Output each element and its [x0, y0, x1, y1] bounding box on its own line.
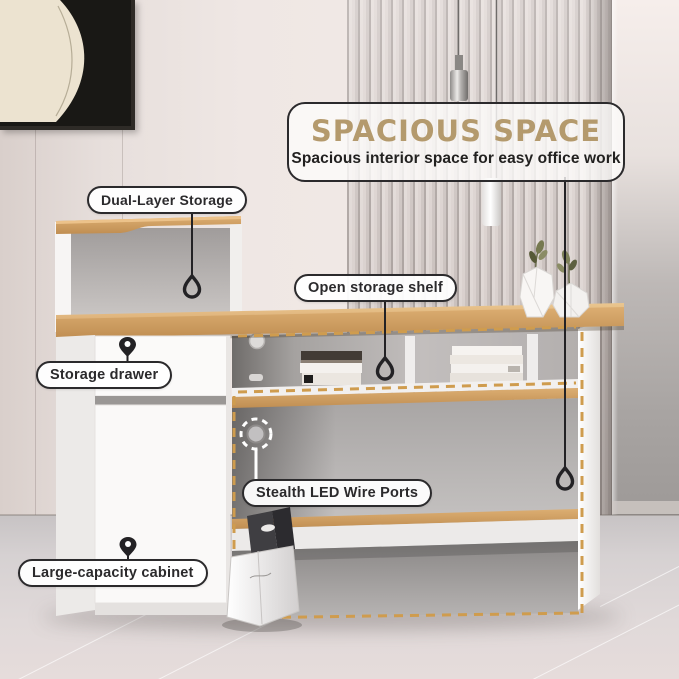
led-wire-port	[248, 426, 265, 443]
open-shelf-row	[232, 326, 578, 408]
pedestal-kick	[95, 603, 230, 615]
pedestal-edge	[226, 336, 230, 603]
callout-label: Open storage shelf	[308, 280, 443, 296]
small-pendant-lamp	[450, 70, 468, 101]
long-pendant-lamp	[482, 178, 501, 226]
callout-storage-drawer: Storage drawer	[36, 361, 172, 389]
hutch-back-panel	[68, 228, 234, 320]
callout-label: Stealth LED Wire Ports	[256, 485, 418, 501]
callout-large-capacity-cabinet: Large-capacity cabinet	[18, 559, 208, 587]
decor-vases	[520, 239, 589, 317]
hutch-right-side	[230, 224, 242, 318]
callout-open-storage-shelf: Open storage shelf	[294, 274, 457, 302]
bag-body	[227, 546, 299, 626]
callout-dual-layer-storage: Dual-Layer Storage	[87, 186, 247, 214]
power-outlet	[249, 374, 263, 381]
title-heading: SPACIOUS SPACE	[311, 117, 601, 146]
book-stack	[450, 346, 523, 383]
callout-label: Storage drawer	[50, 367, 158, 383]
callout-label: Large-capacity cabinet	[32, 565, 194, 581]
book-stack	[300, 351, 362, 385]
title-subtitle: Spacious interior space for easy office …	[291, 150, 620, 168]
callout-stealth-led-wire-ports: Stealth LED Wire Ports	[242, 479, 432, 507]
drawer-pull-recess	[95, 396, 230, 405]
title-box: SPACIOUS SPACE Spacious interior space f…	[287, 102, 625, 182]
product-annotation-image: SPACIOUS SPACE Spacious interior space f…	[0, 0, 679, 679]
callout-label: Dual-Layer Storage	[101, 192, 233, 208]
